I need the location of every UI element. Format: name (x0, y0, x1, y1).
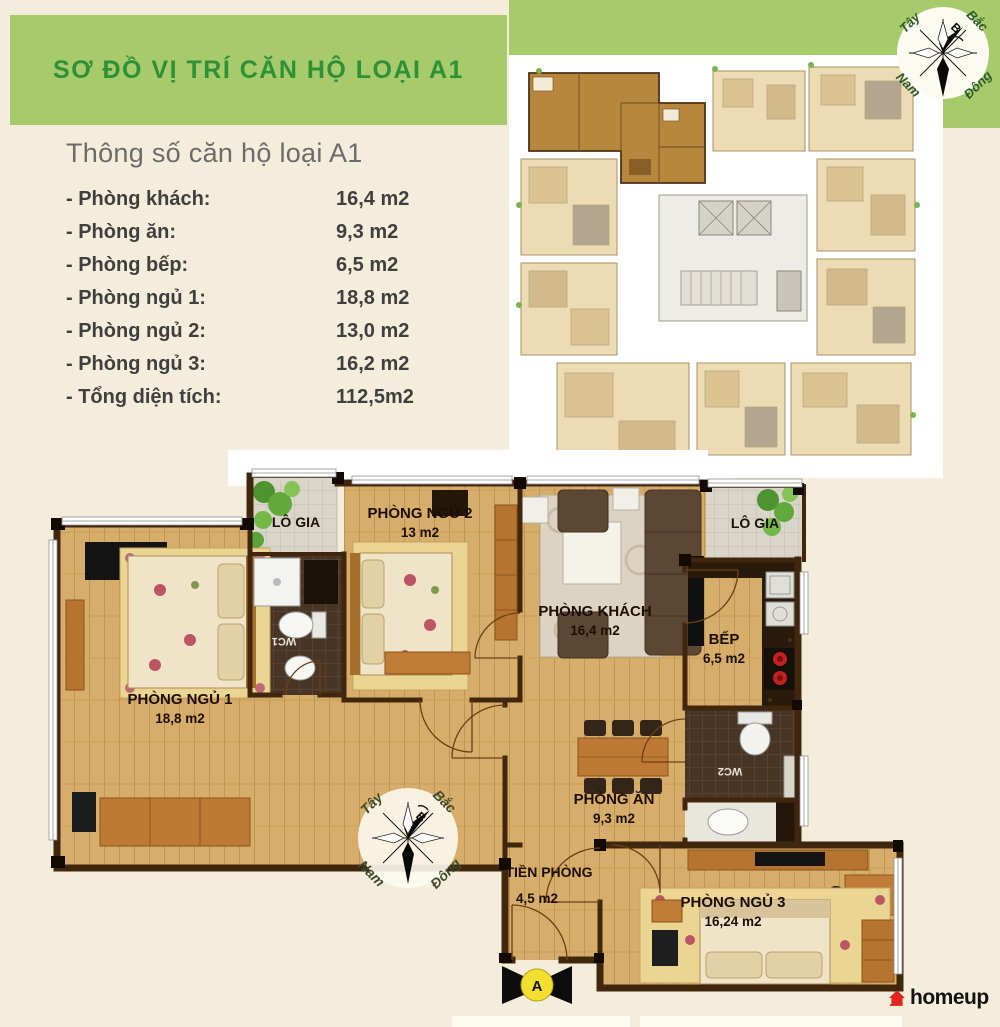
bedroom1-label: PHÒNG NGỦ 1 (127, 690, 232, 708)
loggia2-label: LÔ GIA (731, 514, 779, 531)
headboard (350, 553, 360, 675)
kitchen-label: BẾP (709, 631, 740, 648)
sink-icon (708, 809, 748, 835)
side-table (652, 900, 682, 922)
home-icon (888, 989, 906, 1007)
entrance-label: A (532, 978, 543, 995)
wc1-label: WC1 (272, 635, 296, 647)
bath-cabinet (304, 560, 338, 604)
bedroom2-label: PHÒNG NGỦ 2 (367, 504, 472, 522)
shelf (784, 756, 796, 798)
dining-area: 9,3 m2 (593, 811, 635, 826)
kitchen-sink (766, 602, 794, 626)
wardrobe (862, 920, 894, 982)
toilet-icon (279, 612, 313, 638)
pillow (218, 624, 244, 680)
entrance-marker: A (502, 966, 572, 1004)
homeup-logo: homeup (888, 986, 989, 1010)
side-table (613, 488, 639, 510)
chair (652, 930, 678, 966)
dining-label: PHÒNG ĂN (574, 790, 655, 808)
bottom-strip (640, 1016, 902, 1027)
side-cabinet (66, 600, 84, 690)
toilet-icon (740, 723, 770, 755)
bottom-strip (452, 1016, 630, 1027)
pillow (218, 564, 244, 618)
toilet-tank (312, 612, 326, 638)
bedroom3-label: PHÒNG NGỦ 3 (680, 893, 785, 911)
kitchen-area: 6,5 m2 (703, 651, 745, 666)
compass-rose-plan: B Tây Bắc Nam Đông (355, 786, 464, 892)
pillow (362, 560, 384, 608)
toilet-tank (738, 712, 772, 724)
hall-area: 4,5 m2 (516, 891, 558, 906)
logo-text: homeup (910, 986, 989, 1010)
tall-cabinet (776, 802, 796, 842)
bedroom2-area: 13 m2 (401, 525, 439, 540)
speaker (72, 792, 96, 832)
pillow (766, 952, 822, 978)
pillow (362, 614, 384, 664)
hall-label: TIỀN PHÒNG (505, 863, 592, 880)
apartment-floorplan: PHÒNG NGỦ 1 18,8 m2 PHÒNG NGỦ 2 13 m2 PH… (0, 0, 1000, 1027)
pillow (706, 952, 762, 978)
bedroom3-area: 16,24 m2 (704, 914, 761, 929)
tv (755, 852, 825, 866)
wc2-label: WC2 (718, 765, 742, 777)
bench (385, 652, 470, 674)
low-cabinet (100, 798, 250, 846)
living-area: 16,4 m2 (570, 623, 620, 638)
loggia1-label: LÔ GIA (272, 513, 320, 530)
armchair (558, 490, 608, 532)
living-label: PHÒNG KHÁCH (538, 602, 651, 620)
bedroom1-area: 18,8 m2 (155, 711, 205, 726)
wardrobe (495, 505, 517, 640)
side-table (522, 497, 548, 523)
